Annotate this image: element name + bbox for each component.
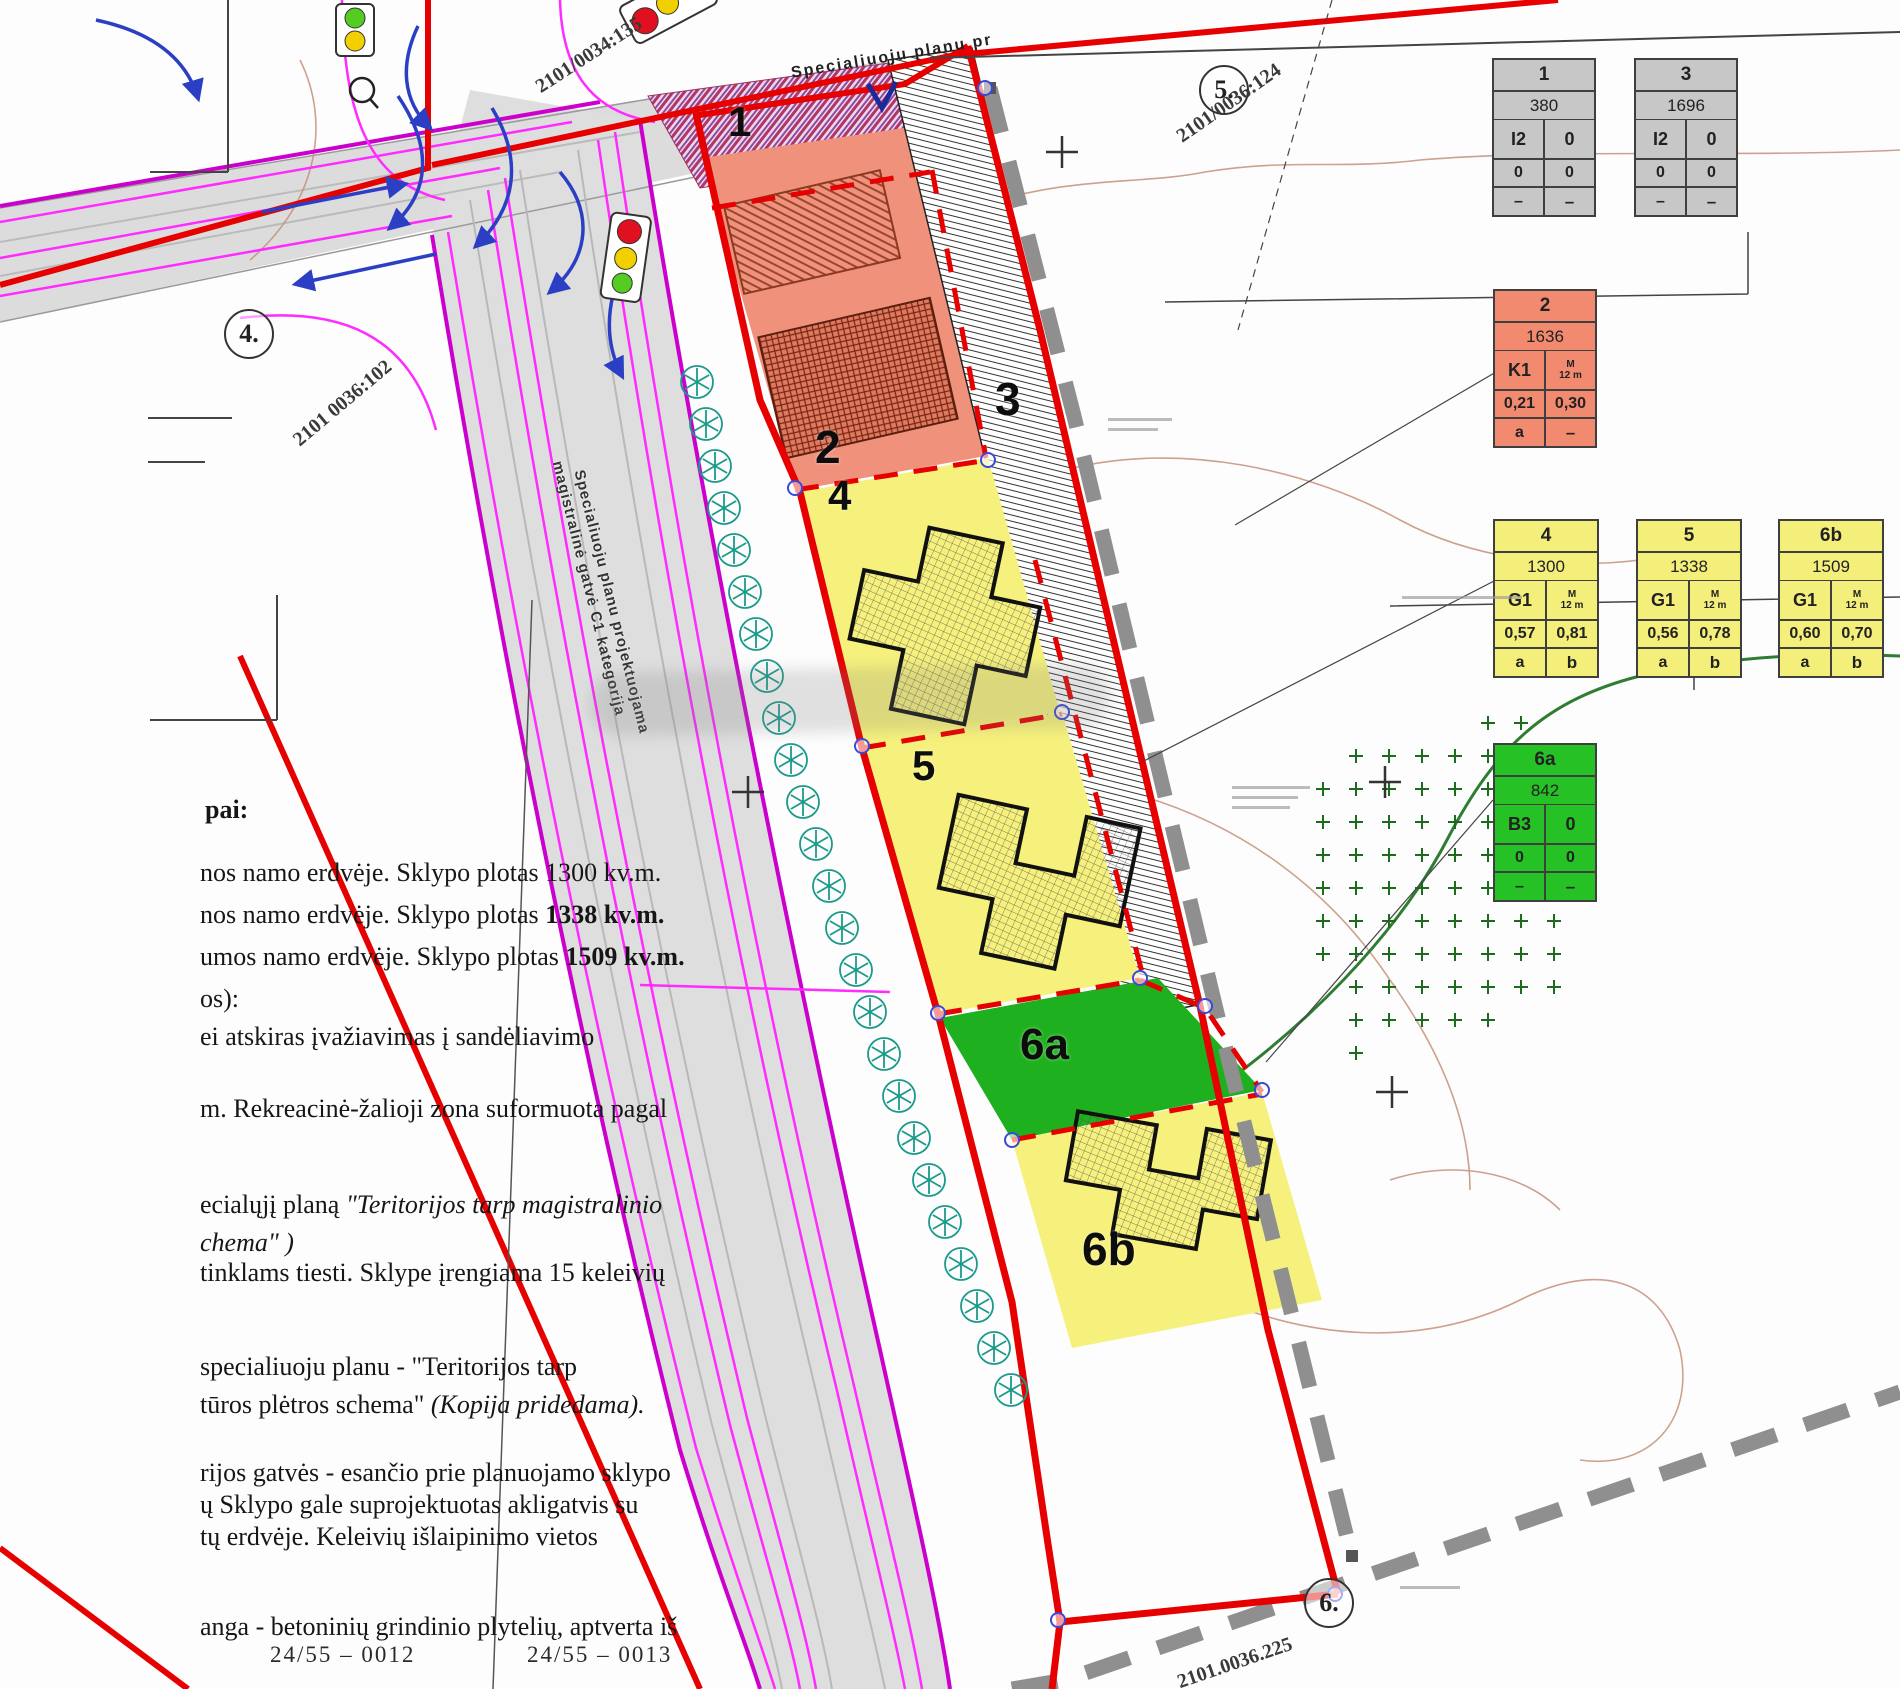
table-plot-area: 1509 xyxy=(1780,553,1882,581)
note-line: os): xyxy=(200,984,239,1014)
plot-table-3: 31696I2000–– xyxy=(1634,58,1738,217)
note-line: chema" ) xyxy=(200,1228,294,1258)
plot-label-6a: 6a xyxy=(1020,1020,1069,1070)
micro-annotation xyxy=(1232,806,1290,809)
table-plot-area: 1696 xyxy=(1636,92,1736,120)
plot-table-5: 51338G1M12 m0,560,78ab xyxy=(1636,519,1742,678)
table-plot-number: 4 xyxy=(1495,521,1597,553)
note-line: ei atskiras įvažiavimas į sandėliavimo xyxy=(200,1022,594,1052)
plot-label-5: 5 xyxy=(912,742,935,790)
plan-map-drawing xyxy=(0,0,1900,1689)
micro-annotation xyxy=(1108,418,1172,421)
note-line: ecialųjį planą "Teritorijos tarp magistr… xyxy=(200,1190,662,1220)
circled-parcel-4: 4. xyxy=(224,309,274,359)
note-line: m. Rekreacinė-žalioji zona suformuota pa… xyxy=(200,1094,667,1124)
micro-annotation xyxy=(1108,428,1158,431)
traffic-light-small xyxy=(336,4,378,108)
table-plot-number: 5 xyxy=(1638,521,1740,553)
plot-table-6a: 6a842B3000–– xyxy=(1493,743,1597,902)
table-plot-area: 380 xyxy=(1494,92,1594,120)
sheet-number-left: 24/55 – 0012 xyxy=(270,1642,415,1668)
table-plot-area: 1300 xyxy=(1495,553,1597,581)
table-plot-area: 842 xyxy=(1495,777,1595,805)
circled-parcel-6: 6. xyxy=(1304,1578,1354,1628)
boundary-node xyxy=(1346,1550,1358,1562)
note-line: tinklams tiesti. Sklype įrengiama 15 kel… xyxy=(200,1258,665,1288)
table-plot-number: 3 xyxy=(1636,60,1736,92)
table-plot-number: 6a xyxy=(1495,745,1595,777)
height-limit: M12 m xyxy=(1561,589,1584,611)
note-line: rijos gatvės - esančio prie planuojamo s… xyxy=(200,1458,671,1488)
sheet-number-right: 24/55 – 0013 xyxy=(527,1642,672,1668)
note-line: nos namo erdvėje. Sklypo plotas 1300 kv.… xyxy=(200,858,661,888)
micro-annotation xyxy=(1232,796,1298,799)
plot-table-1: 1380I2000–– xyxy=(1492,58,1596,217)
notes-heading: pai: xyxy=(205,795,248,825)
note-line: tūros plėtros schema" (Kopija pridedama)… xyxy=(200,1390,645,1420)
note-line: ų Sklypo gale suprojektuotas akligatvis … xyxy=(200,1490,638,1520)
table-plot-area: 1338 xyxy=(1638,553,1740,581)
table-plot-number: 2 xyxy=(1495,291,1595,323)
plot-label-6b: 6b xyxy=(1082,1222,1136,1276)
note-line: anga - betoninių grindinio plytelių, apt… xyxy=(200,1612,677,1642)
plot-label-3: 3 xyxy=(995,372,1021,426)
plot-label-1: 1 xyxy=(728,98,751,146)
table-plot-number: 6b xyxy=(1780,521,1882,553)
watermark-smudge xyxy=(589,663,1110,736)
height-limit: M12 m xyxy=(1559,359,1582,381)
table-plot-number: 1 xyxy=(1494,60,1594,92)
plot-label-2: 2 xyxy=(815,420,841,474)
note-line: tų erdvėje. Keleivių išlaipinimo vietos xyxy=(200,1522,598,1552)
micro-annotation xyxy=(1400,1586,1460,1589)
table-plot-area: 1636 xyxy=(1495,323,1595,351)
height-limit: M12 m xyxy=(1704,589,1727,611)
micro-annotation xyxy=(1232,786,1310,789)
plot-table-2: 21636K1M12 m0,210,30a– xyxy=(1493,289,1597,448)
note-line: nos namo erdvėje. Sklypo plotas 1338 kv.… xyxy=(200,900,664,930)
detailed-plan-sheet: 1 2 3 4 5 6a 6b 4. 5. 6. 2101/0034:135 2… xyxy=(0,0,1900,1689)
note-line: umos namo erdvėje. Sklypo plotas 1509 kv… xyxy=(200,942,685,972)
micro-annotation xyxy=(1402,596,1522,599)
note-line: specialiuoju planu - "Teritorijos tarp xyxy=(200,1352,577,1382)
plot-table-6b: 6b1509G1M12 m0,600,70ab xyxy=(1778,519,1884,678)
height-limit: M12 m xyxy=(1846,589,1869,611)
plot-label-4: 4 xyxy=(828,472,851,520)
